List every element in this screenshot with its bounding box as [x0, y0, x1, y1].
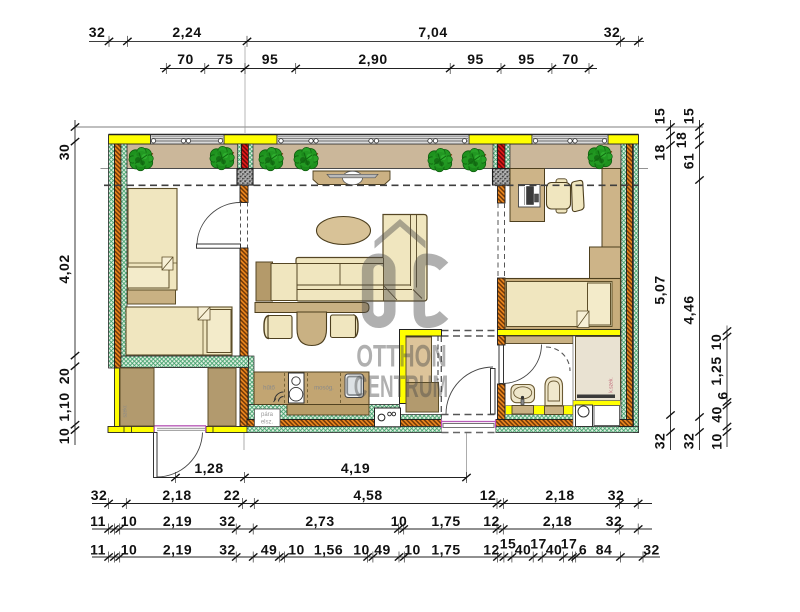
svg-text:32: 32 — [89, 24, 106, 40]
svg-text:6: 6 — [579, 542, 587, 558]
svg-text:61: 61 — [681, 153, 697, 170]
svg-text:szekr.: szekr. — [123, 404, 129, 417]
svg-text:10: 10 — [709, 433, 725, 450]
svg-text:10: 10 — [56, 428, 72, 445]
svg-text:49: 49 — [261, 542, 278, 558]
svg-text:6: 6 — [715, 391, 731, 399]
svg-text:32: 32 — [652, 433, 668, 450]
svg-text:10: 10 — [121, 542, 138, 558]
svg-text:11: 11 — [90, 542, 106, 558]
svg-text:32: 32 — [681, 433, 697, 450]
svg-text:4,46: 4,46 — [681, 295, 697, 324]
svg-text:2,73: 2,73 — [305, 513, 334, 529]
svg-text:12: 12 — [483, 542, 500, 558]
svg-text:10: 10 — [708, 334, 724, 351]
svg-text:2,19: 2,19 — [163, 542, 192, 558]
svg-text:22: 22 — [224, 487, 241, 503]
svg-text:CENTRUM: CENTRUM — [354, 368, 448, 404]
svg-text:49: 49 — [374, 542, 391, 558]
svg-text:11: 11 — [90, 513, 106, 529]
svg-text:4,19: 4,19 — [341, 460, 370, 476]
svg-text:15: 15 — [500, 536, 517, 552]
svg-text:2,19: 2,19 — [163, 513, 192, 529]
svg-text:17: 17 — [530, 536, 547, 552]
svg-text:10: 10 — [121, 513, 138, 529]
svg-text:7,04: 7,04 — [418, 24, 447, 40]
svg-text:1,75: 1,75 — [431, 542, 460, 558]
svg-text:4,02: 4,02 — [56, 254, 72, 283]
svg-text:32: 32 — [608, 487, 625, 503]
svg-text:hűtő: hűtő — [263, 386, 275, 392]
svg-text:12: 12 — [480, 487, 497, 503]
svg-text:elsz.: elsz. — [261, 420, 274, 426]
svg-text:10: 10 — [353, 542, 370, 558]
svg-text:17: 17 — [561, 536, 578, 552]
svg-text:12: 12 — [483, 513, 500, 529]
svg-text:32: 32 — [606, 513, 623, 529]
svg-text:95: 95 — [467, 51, 484, 67]
svg-text:1,28: 1,28 — [194, 460, 223, 476]
svg-text:40: 40 — [709, 406, 725, 423]
svg-text:70: 70 — [177, 51, 194, 67]
svg-text:95: 95 — [262, 51, 279, 67]
svg-text:2,18: 2,18 — [545, 487, 574, 503]
svg-text:2,18: 2,18 — [162, 487, 191, 503]
svg-text:2,24: 2,24 — [172, 24, 201, 40]
svg-text:95: 95 — [518, 51, 535, 67]
svg-text:18: 18 — [673, 132, 689, 149]
svg-text:5,07: 5,07 — [652, 275, 668, 304]
svg-text:4,58: 4,58 — [353, 487, 382, 503]
svg-text:75: 75 — [217, 51, 234, 67]
svg-text:32: 32 — [219, 513, 236, 529]
svg-text:18: 18 — [652, 144, 668, 161]
svg-text:30: 30 — [56, 144, 72, 161]
svg-text:32: 32 — [219, 542, 236, 558]
svg-text:1,25: 1,25 — [708, 356, 724, 385]
svg-text:1,75: 1,75 — [431, 513, 460, 529]
svg-text:2,18: 2,18 — [543, 513, 572, 529]
svg-text:40: 40 — [515, 542, 532, 558]
svg-text:84: 84 — [596, 542, 613, 558]
svg-text:10: 10 — [404, 542, 421, 558]
svg-text:32: 32 — [91, 487, 108, 503]
svg-text:mosóg.: mosóg. — [314, 386, 334, 392]
svg-text:15: 15 — [681, 108, 697, 125]
svg-text:32: 32 — [604, 24, 621, 40]
svg-text:70: 70 — [562, 51, 579, 67]
svg-text:2,90: 2,90 — [358, 51, 387, 67]
svg-text:1,56: 1,56 — [314, 542, 343, 558]
svg-text:10: 10 — [391, 513, 408, 529]
svg-text:32: 32 — [643, 542, 660, 558]
svg-text:20: 20 — [56, 368, 72, 385]
svg-text:k.szek.: k.szek. — [609, 377, 615, 393]
svg-text:1,10: 1,10 — [56, 392, 72, 421]
svg-text:pára: pára — [261, 412, 274, 418]
svg-text:15: 15 — [652, 108, 668, 125]
svg-text:10: 10 — [288, 542, 305, 558]
